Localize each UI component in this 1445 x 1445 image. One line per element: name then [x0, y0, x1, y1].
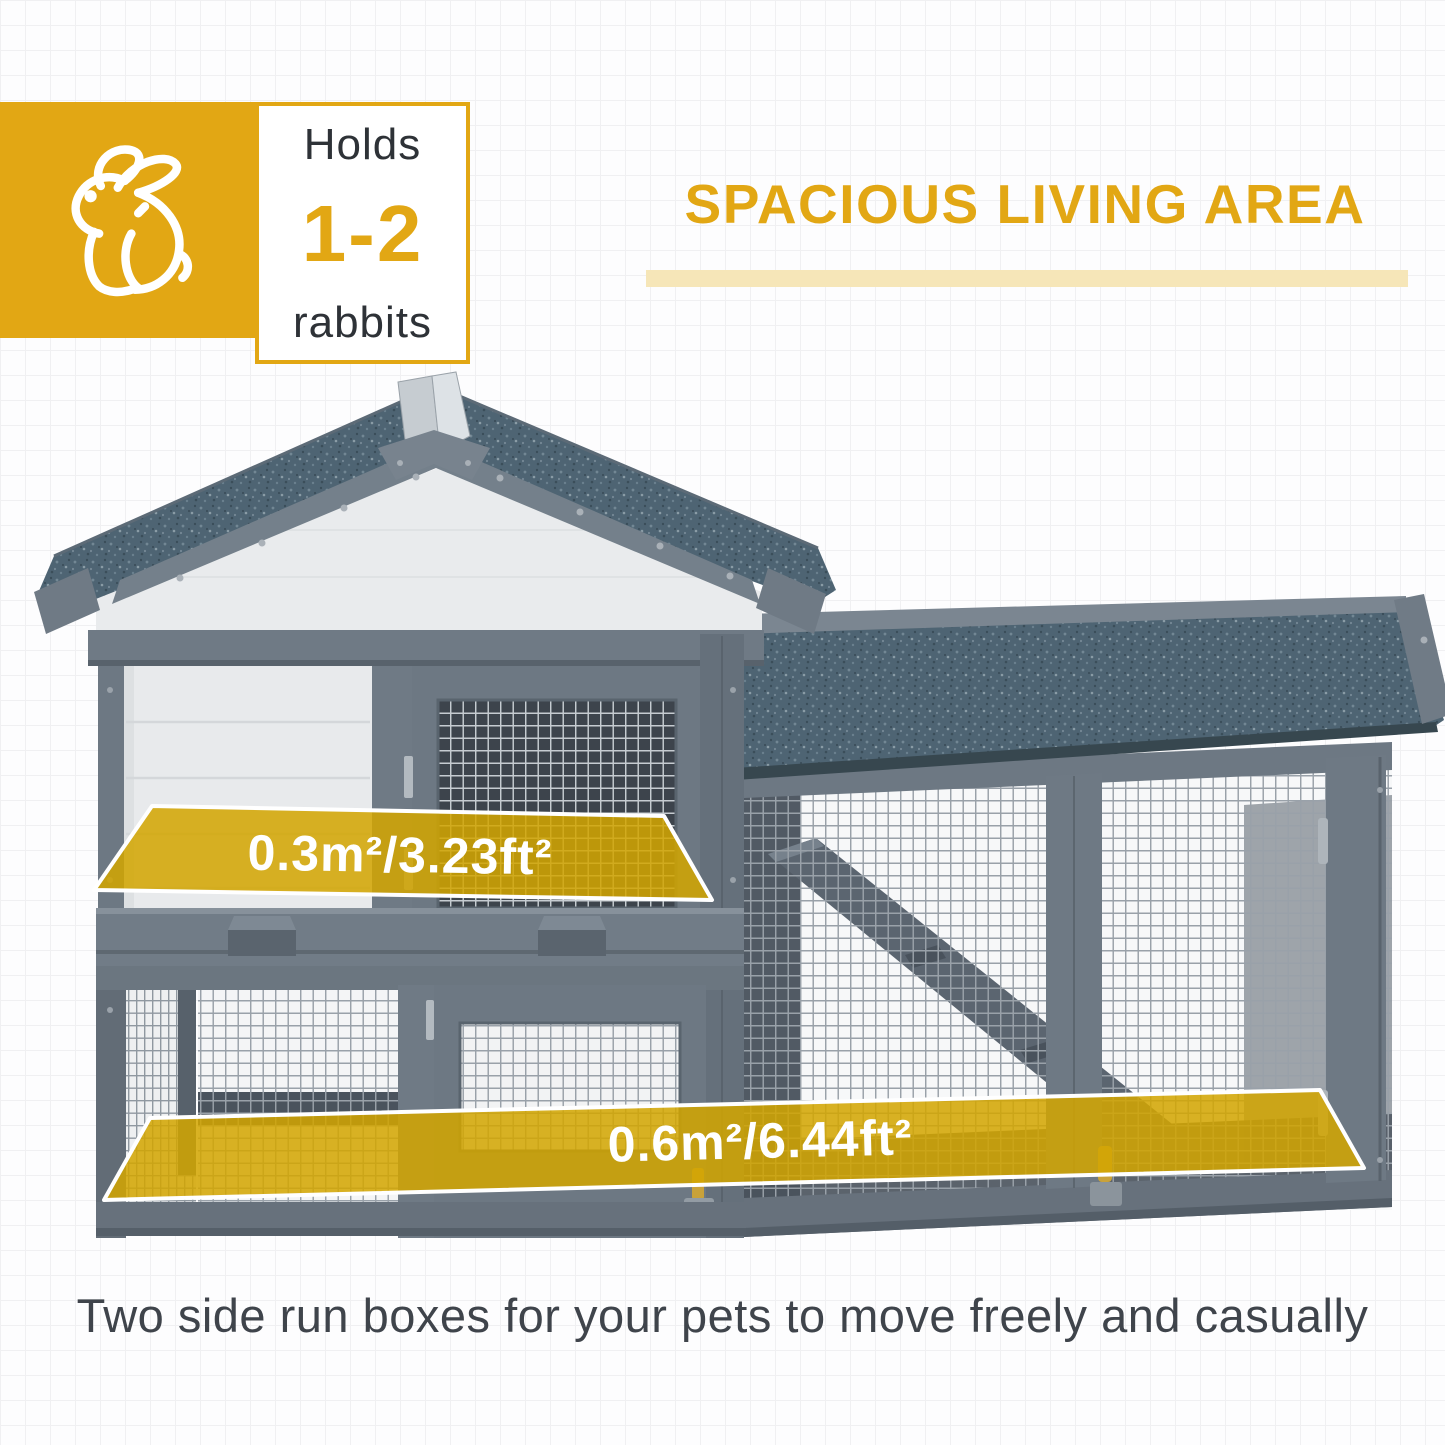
upper-door-hinge — [404, 756, 413, 798]
tray-handle — [538, 916, 606, 956]
tray-row — [96, 908, 744, 990]
upper-floor-area-label: 0.3m²/3.23ft² — [120, 822, 681, 889]
rabbit-hutch-illustration — [0, 0, 1445, 1445]
tray-handle — [228, 916, 296, 956]
caption-text: Two side run boxes for your pets to move… — [0, 1288, 1445, 1343]
wall-beam — [88, 630, 764, 666]
